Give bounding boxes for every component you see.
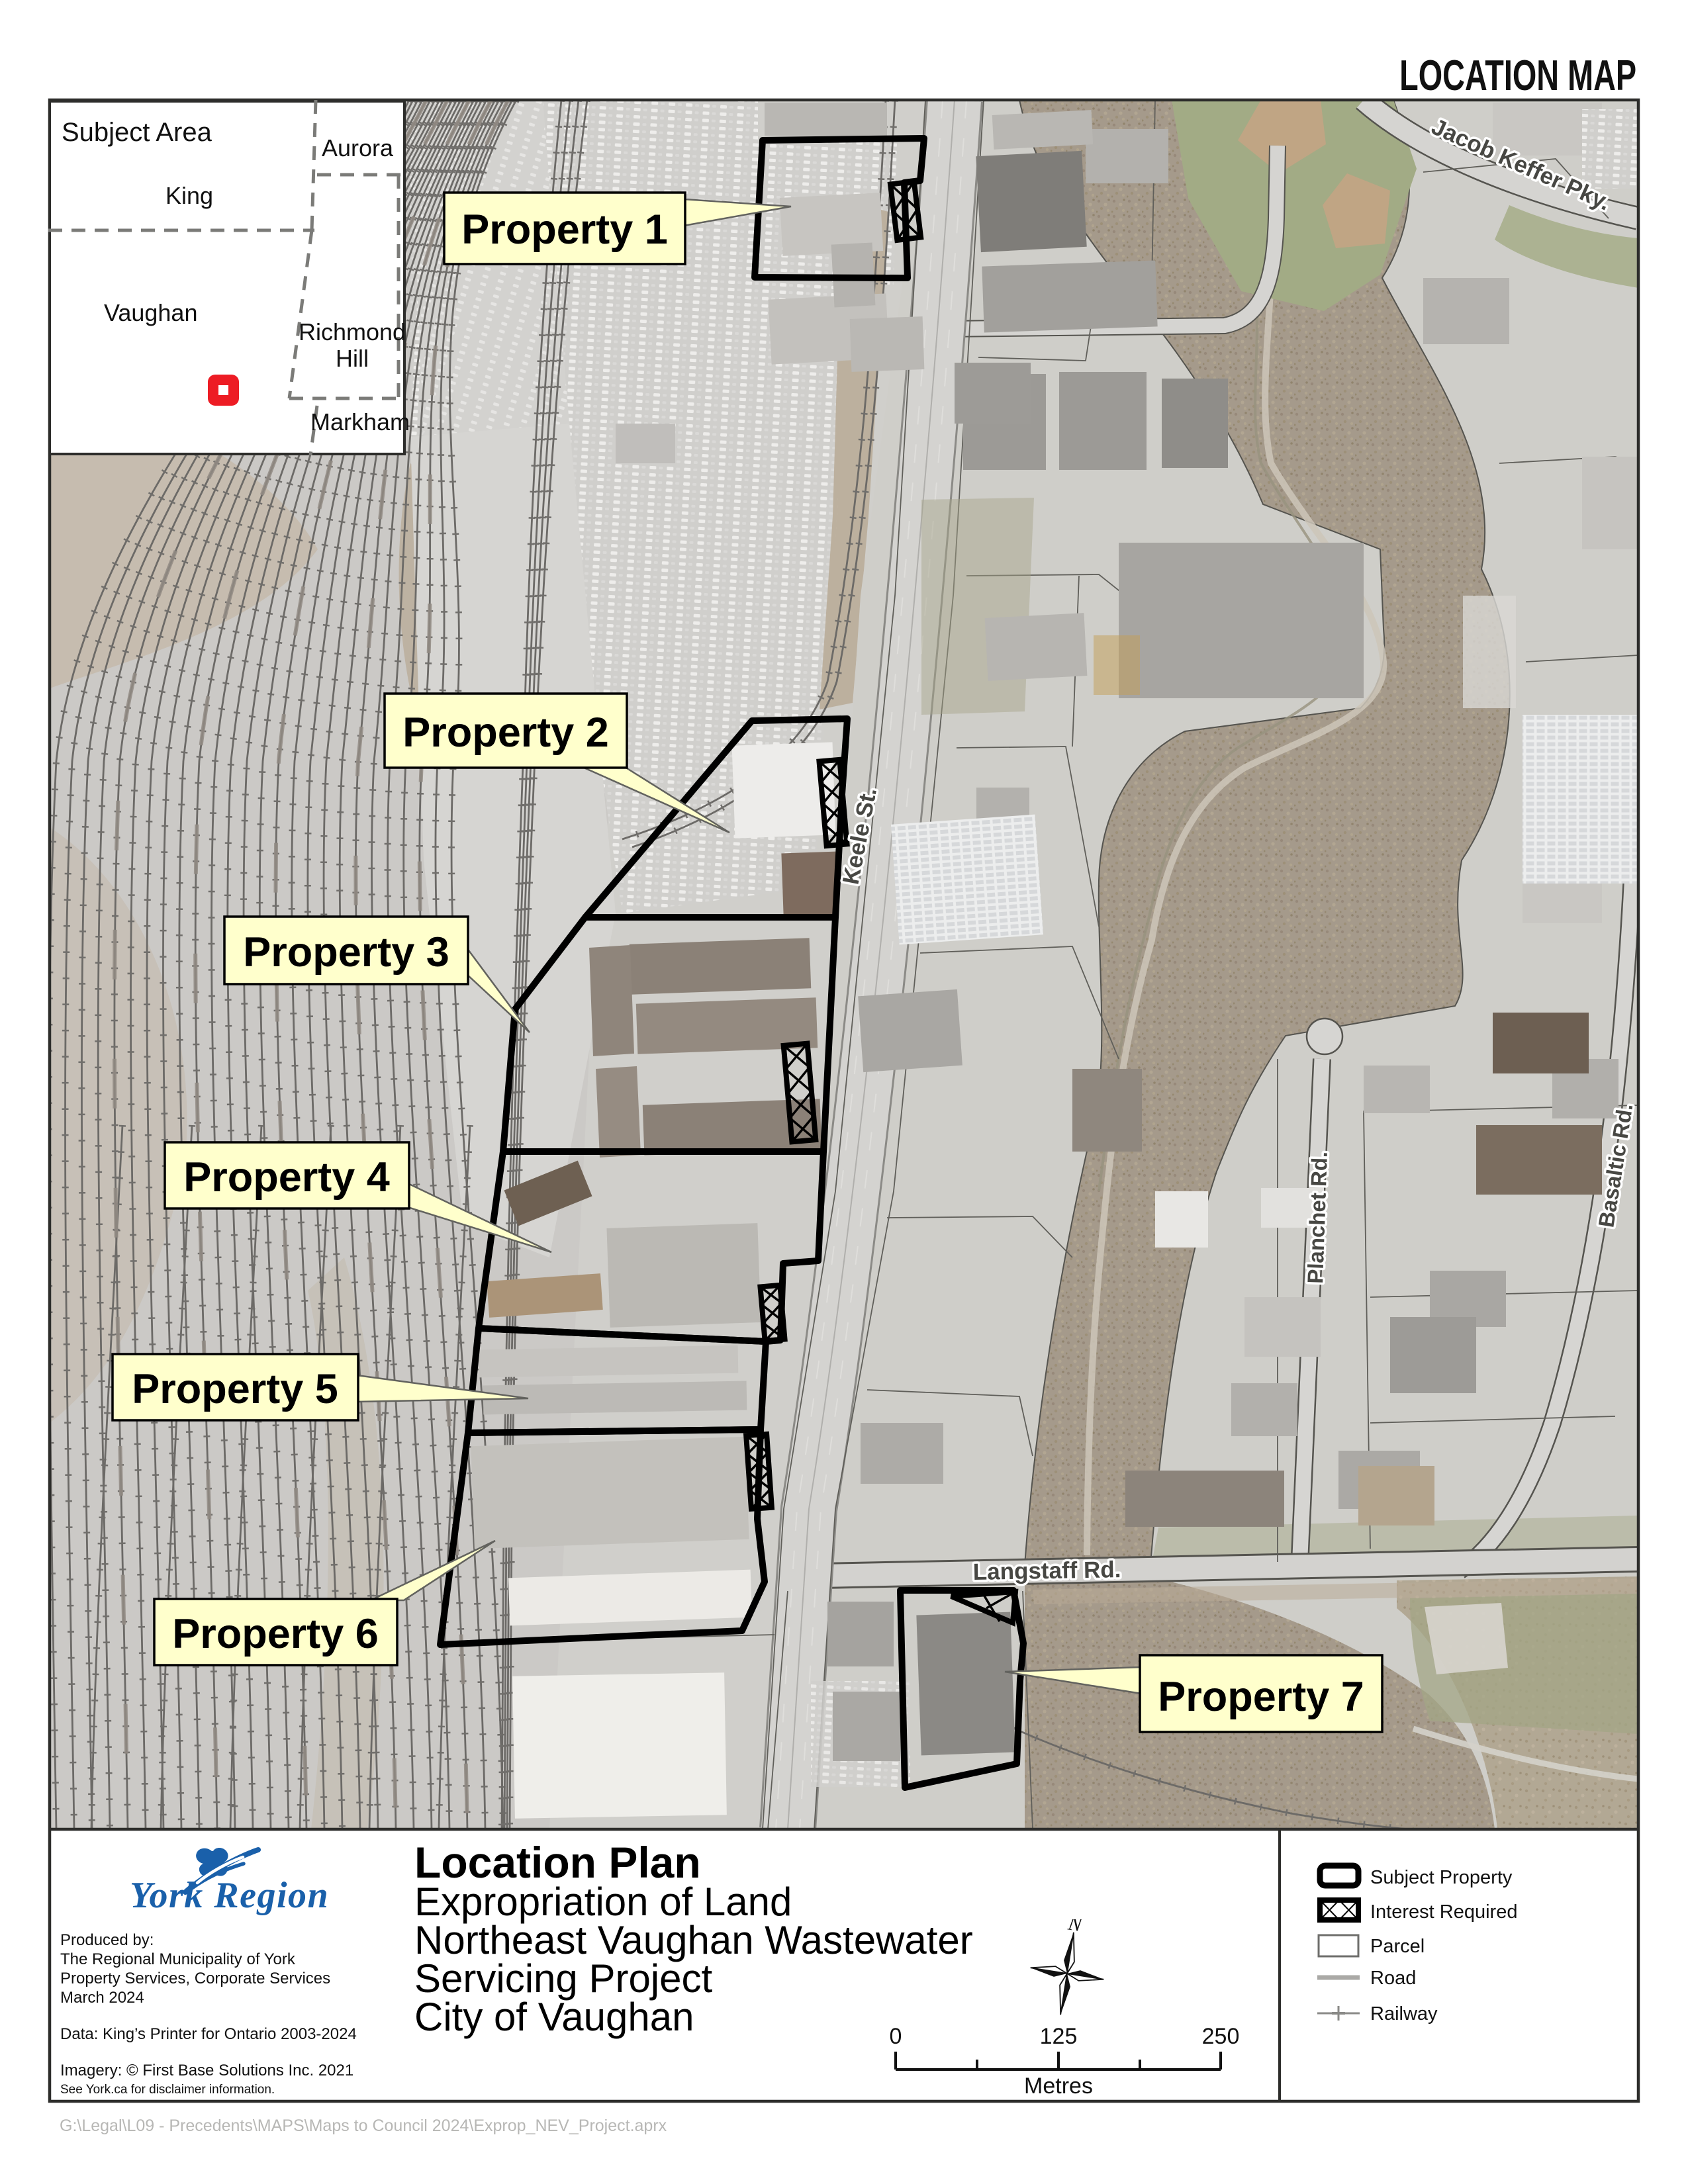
svg-text:Planchet Rd.: Planchet Rd. xyxy=(1303,1151,1332,1284)
svg-text:Road: Road xyxy=(1370,1968,1416,1989)
svg-text:Metres: Metres xyxy=(1024,2073,1093,2099)
svg-text:Property 1: Property 1 xyxy=(461,206,668,253)
svg-text:N: N xyxy=(1066,1919,1084,1936)
svg-text:Property 4: Property 4 xyxy=(183,1154,390,1201)
svg-text:Property 7: Property 7 xyxy=(1158,1674,1364,1720)
svg-text:Property 5: Property 5 xyxy=(132,1366,338,1412)
svg-text:Property 2: Property 2 xyxy=(402,709,609,756)
svg-text:Property 3: Property 3 xyxy=(243,929,449,976)
svg-text:Langstaff Rd.: Langstaff Rd. xyxy=(972,1557,1121,1585)
svg-text:0: 0 xyxy=(890,2024,902,2049)
svg-text:250: 250 xyxy=(1202,2024,1240,2049)
svg-text:125: 125 xyxy=(1040,2024,1078,2049)
svg-text:Parcel: Parcel xyxy=(1370,1936,1425,1957)
svg-text:York Region: York Region xyxy=(130,1875,329,1916)
svg-text:Railway: Railway xyxy=(1370,2003,1438,2025)
svg-text:Subject Property: Subject Property xyxy=(1370,1867,1513,1888)
svg-text:Interest Required: Interest Required xyxy=(1370,1901,1517,1923)
svg-text:Property 6: Property 6 xyxy=(172,1611,379,1657)
